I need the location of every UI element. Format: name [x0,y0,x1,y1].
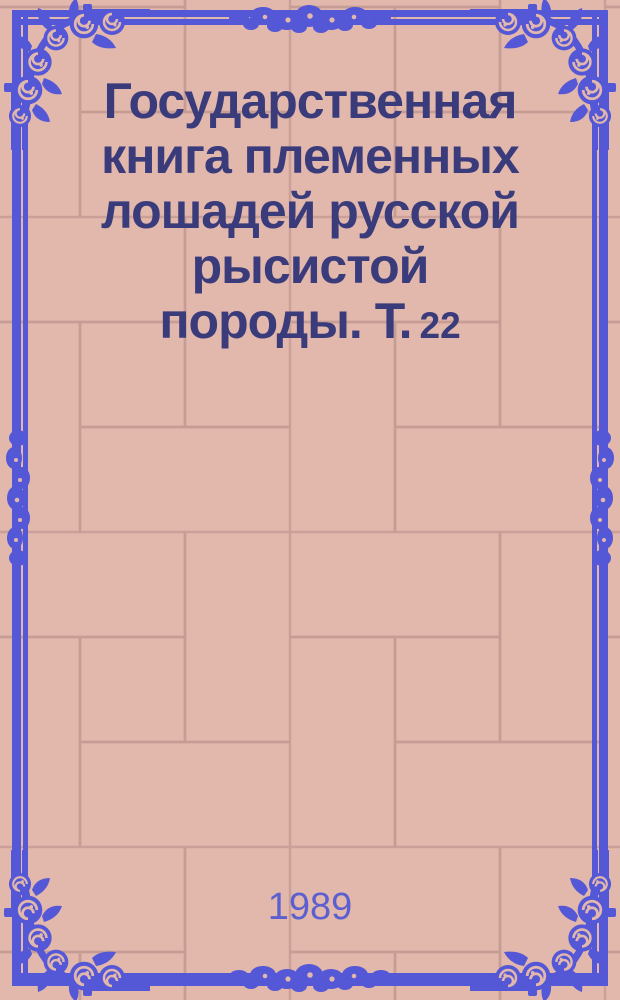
title-line: Государственная [28,74,592,129]
title-line: породы. Т.22 [28,294,592,353]
center-ornament-bottom [225,960,395,994]
center-ornament-top [225,1,395,35]
side-ornament-right [586,428,618,568]
title-line: лошадей русской [28,184,592,239]
title-last-line: породы. Т. [159,293,411,349]
title-line: рысистой [28,239,592,294]
side-ornament-left [2,428,34,568]
book-title: Государственная книга племенных лошадей … [28,74,592,353]
title-line: книга племенных [28,129,592,184]
book-cover: Государственная книга племенных лошадей … [0,0,620,1000]
publication-year: 1989 [0,886,620,929]
volume-number: 22 [420,305,461,346]
